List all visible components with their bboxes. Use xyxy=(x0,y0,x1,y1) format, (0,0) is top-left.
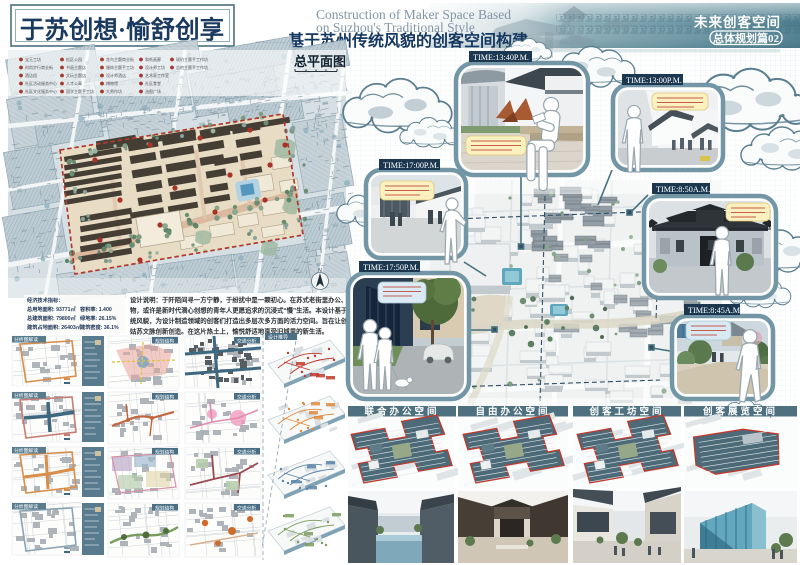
svg-text:自由办公空间: 自由办公空间 xyxy=(475,406,550,418)
svg-text:经济技术指标：: 经济技术指标： xyxy=(27,296,63,304)
svg-text:于苏创想·愉舒创享: 于苏创想·愉舒创享 xyxy=(20,15,224,44)
svg-text:和纸画廊: 和纸画廊 xyxy=(145,56,161,62)
svg-text:规划结构: 规划结构 xyxy=(155,393,174,400)
svg-text:分析图解读: 分析图解读 xyxy=(14,503,38,510)
svg-text:总平面图: 总平面图 xyxy=(294,54,346,69)
svg-text:油图广场: 油图广场 xyxy=(145,88,161,94)
svg-text:设计推导: 设计推导 xyxy=(268,334,288,341)
svg-text:统风貌，为设计制造领域的创客们打造出多层次多方面的活力空间。: 统风貌，为设计制造领域的创客们打造出多层次多方面的活力空间。旨在让创客们依托 xyxy=(130,316,373,325)
svg-text:总建筑面积: 79800㎡: 总建筑面积: 79800㎡ xyxy=(27,314,77,322)
svg-text:酒店组: 酒店组 xyxy=(25,72,37,78)
svg-text:总用地面积: 93771㎡: 总用地面积: 93771㎡ xyxy=(27,305,77,313)
svg-text:交通分析: 交通分析 xyxy=(237,504,256,511)
svg-text:容积率: 1.400: 容积率: 1.400 xyxy=(79,305,112,313)
svg-text:社区活动服务中心: 社区活动服务中心 xyxy=(25,80,57,86)
svg-text:艺术家工作室: 艺术家工作室 xyxy=(145,72,169,78)
svg-text:人才公寓: 人才公寓 xyxy=(66,80,82,86)
svg-text:书画主题店: 书画主题店 xyxy=(66,64,86,70)
svg-text:松区公园: 松区公园 xyxy=(66,56,82,62)
svg-text:绿地率: 26.15%: 绿地率: 26.15% xyxy=(80,314,117,322)
svg-text:TIME:13:00P.M.: TIME:13:00P.M. xyxy=(626,76,682,85)
svg-text:分析图解读: 分析图解读 xyxy=(14,336,38,343)
svg-text:物，或许是新时代潜心创想的青年人更愿追求的沉浸式“慢”生活。: 物，或许是新时代潜心创想的青年人更愿追求的沉浸式“慢”生活。本设计基于苏式传 xyxy=(130,306,367,315)
svg-text:——基于苏州传统风貌的创客空间构建: ——基于苏州传统风貌的创客空间构建 xyxy=(255,31,528,50)
svg-text:规划结构: 规划结构 xyxy=(155,337,174,344)
svg-text:TIME:8:45A.M.: TIME:8:45A.M. xyxy=(688,306,742,315)
svg-text:N: N xyxy=(318,268,322,274)
svg-text:交通分析: 交通分析 xyxy=(237,448,256,455)
svg-text:社区文化服务中心: 社区文化服务中心 xyxy=(25,88,57,94)
svg-text:大师作坊: 大师作坊 xyxy=(106,88,122,94)
svg-text:分析图解读: 分析图解读 xyxy=(14,392,38,399)
svg-text:交通分析: 交通分析 xyxy=(237,337,256,344)
svg-text:建筑密度: 36.1%: 建筑密度: 36.1% xyxy=(80,323,119,331)
svg-text:宝玉工坊: 宝玉工坊 xyxy=(25,56,41,62)
svg-text:花鸟主题商业街: 花鸟主题商业街 xyxy=(106,56,134,62)
svg-text:博物馆: 博物馆 xyxy=(106,80,118,86)
svg-text:TIME:17:50P.M.: TIME:17:50P.M. xyxy=(363,263,419,272)
svg-text:TIME:17:00P.M.: TIME:17:00P.M. xyxy=(383,161,439,170)
svg-text:分析图解读: 分析图解读 xyxy=(14,447,38,454)
svg-text:姑苏文脉创新创造。在这片热土上，愉悦舒适地享受旧城里的新生活: 姑苏文脉创新创造。在这片热土上，愉悦舒适地享受旧城里的新生活。 xyxy=(130,327,328,336)
svg-text:总体规划篇02: 总体规划篇02 xyxy=(713,31,779,45)
svg-text:琥珀主题手工作坊: 琥珀主题手工作坊 xyxy=(176,56,208,62)
svg-text:设计师工坊: 设计师工坊 xyxy=(145,64,165,70)
svg-text:创客工坊空间: 创客工坊空间 xyxy=(588,406,664,418)
svg-text:TIME:13:40P.M.: TIME:13:40P.M. xyxy=(473,53,529,62)
svg-text:时尚步行商业街: 时尚步行商业街 xyxy=(25,64,53,70)
svg-text:国学主题手工坊: 国学主题手工坊 xyxy=(66,88,94,94)
svg-text:规划结构: 规划结构 xyxy=(155,504,174,511)
svg-text:服饰主题手工坊: 服饰主题手工坊 xyxy=(106,64,134,70)
svg-text:社区食堂: 社区食堂 xyxy=(145,80,161,86)
svg-text:规划结构: 规划结构 xyxy=(155,448,174,455)
svg-text:文玩主题店: 文玩主题店 xyxy=(66,72,86,78)
svg-text:设计师酒店: 设计师酒店 xyxy=(106,72,126,78)
svg-text:交通分析: 交通分析 xyxy=(237,393,256,400)
svg-text:设计说明：于阡陌间寻一方宁静，于纷扰中是一颗初心。在苏式老街: 设计说明：于阡陌间寻一方宁静，于纷扰中是一颗初心。在苏式老街里办公、居住、购 xyxy=(130,295,373,304)
svg-text:吉他主题手工作坊: 吉他主题手工作坊 xyxy=(176,64,208,70)
svg-text:建筑占地面积: 26403㎡: 建筑占地面积: 26403㎡ xyxy=(27,323,82,331)
svg-text:TIME:8:50A.M.: TIME:8:50A.M. xyxy=(656,185,710,194)
svg-text:未来创客空间: 未来创客空间 xyxy=(694,14,781,30)
